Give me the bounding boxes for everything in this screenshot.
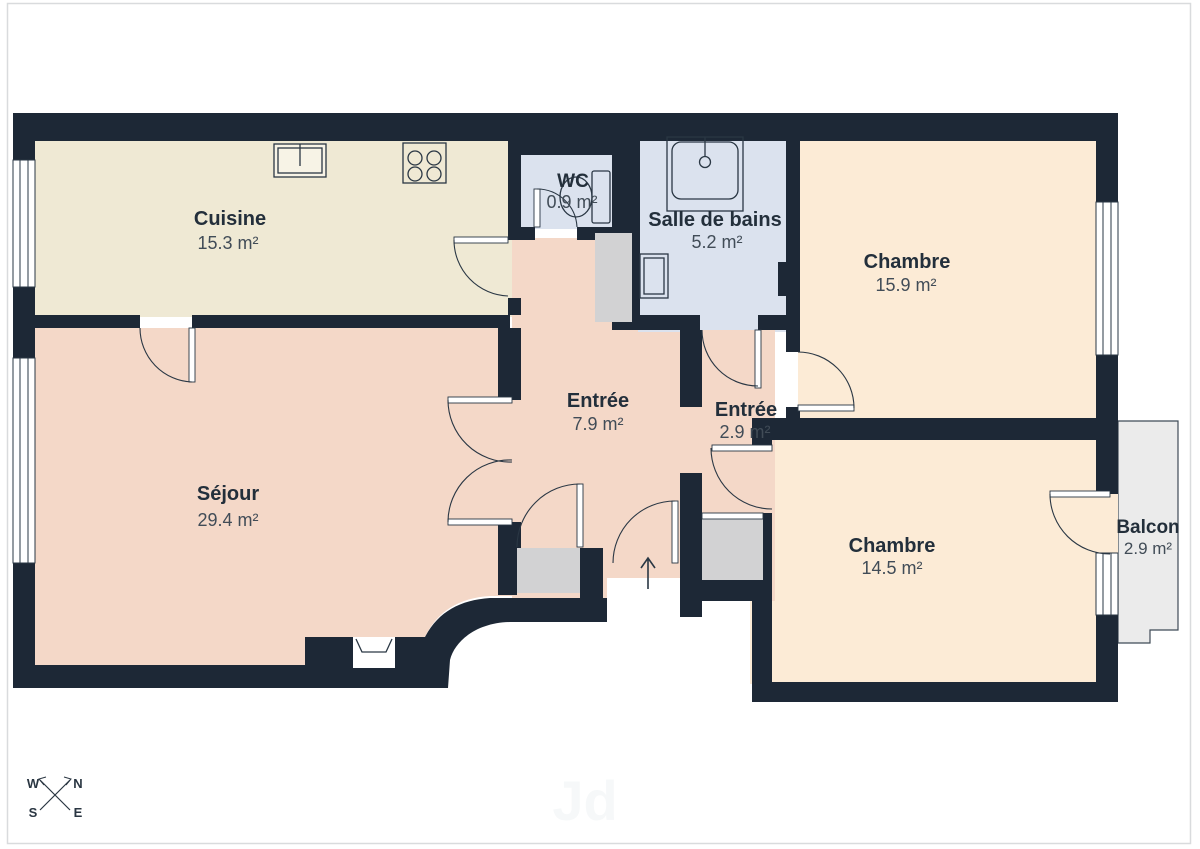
room-wc-area-label: 0.9 m²: [546, 192, 597, 212]
door-leaf: [702, 513, 763, 519]
door-leaf: [189, 328, 195, 382]
watermark-text: Jd: [552, 769, 617, 832]
compass-west-label: W: [27, 776, 40, 791]
room-entree-1-area-label: 7.9 m²: [572, 414, 623, 434]
compass-north-label: N: [73, 776, 82, 791]
closet: [517, 548, 580, 593]
room-entree-2-name-label: Entrée: [715, 399, 777, 421]
room-balcon-name-label: Balcon: [1116, 517, 1179, 538]
room-wc-name-label: WC: [557, 171, 589, 192]
room-cuisine-area-label: 15.3 m²: [197, 233, 258, 253]
door-leaf: [454, 237, 508, 243]
room-entree-2-area-label: 2.9 m²: [719, 422, 770, 442]
kitchen-sink-icon: [274, 144, 326, 177]
room-cuisine-name-label: Cuisine: [194, 208, 266, 230]
stove-icon: [403, 143, 446, 183]
room-chambre-1-name-label: Chambre: [864, 251, 951, 273]
room-entree-1-name-label: Entrée: [567, 390, 629, 412]
door-leaf: [798, 405, 854, 411]
room-chambre-2-floor: [750, 438, 1098, 684]
room-sejour-name-label: Séjour: [197, 483, 259, 505]
room-sejour-floor: [33, 328, 512, 665]
door-leaf: [534, 189, 540, 227]
window: [13, 160, 35, 287]
window: [13, 358, 35, 563]
window: [1096, 553, 1118, 615]
floor-plan-page: Jd: [0, 0, 1200, 849]
room-chambre-1-area-label: 15.9 m²: [875, 275, 936, 295]
room-salle-de-bains-name-label: Salle de bains: [648, 209, 781, 231]
sejour-sink-icon: [353, 637, 395, 668]
door-leaf: [1050, 491, 1110, 497]
door-leaf: [448, 397, 512, 403]
compass-east-label: E: [74, 805, 83, 820]
room-chambre-1-floor: [798, 131, 1098, 420]
closet: [595, 233, 632, 322]
door-leaf: [448, 519, 512, 525]
room-balcon-area-label: 2.9 m²: [1124, 539, 1173, 558]
door-leaf: [577, 484, 583, 547]
entrance-exterior: [607, 578, 680, 628]
window: [1096, 202, 1118, 355]
compass-south-label: S: [29, 805, 38, 820]
room-chambre-2-area-label: 14.5 m²: [861, 558, 922, 578]
balcony-door-threshold: [1096, 494, 1118, 553]
room-salle-de-bains-area-label: 5.2 m²: [691, 232, 742, 252]
floor-plan-drawing: Jd: [0, 0, 1200, 849]
room-chambre-2-name-label: Chambre: [849, 535, 936, 557]
door-leaf: [755, 330, 761, 388]
closet: [702, 518, 763, 580]
door-leaf: [672, 501, 678, 563]
room-sejour-area-label: 29.4 m²: [197, 510, 258, 530]
door-leaf: [712, 445, 772, 451]
